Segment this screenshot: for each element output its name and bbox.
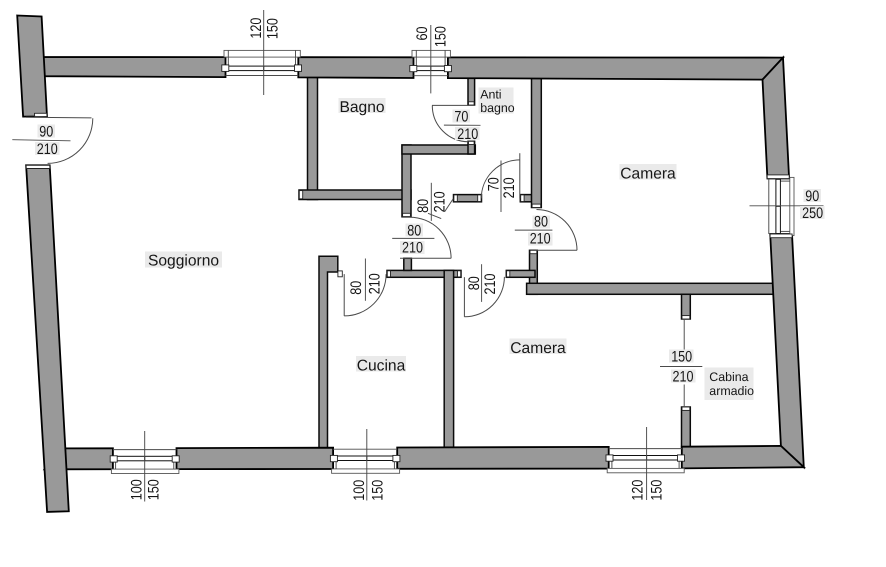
svg-text:80: 80 (415, 199, 432, 213)
svg-text:bagno: bagno (480, 101, 515, 115)
svg-text:210: 210 (432, 191, 449, 212)
svg-text:90: 90 (39, 123, 53, 140)
svg-text:60: 60 (414, 27, 431, 41)
svg-text:210: 210 (457, 126, 478, 143)
svg-text:Anti: Anti (480, 88, 501, 102)
svg-text:80: 80 (466, 276, 483, 290)
svg-text:210: 210 (37, 141, 58, 158)
svg-text:120: 120 (629, 480, 646, 501)
svg-text:90: 90 (805, 188, 819, 205)
svg-text:150: 150 (370, 480, 387, 501)
svg-text:210: 210 (530, 231, 551, 248)
svg-text:210: 210 (501, 177, 518, 198)
svg-text:Camera: Camera (510, 340, 566, 357)
svg-text:210: 210 (482, 274, 499, 295)
svg-text:Cucina: Cucina (357, 358, 406, 375)
svg-text:150: 150 (146, 479, 163, 500)
svg-text:80: 80 (348, 281, 365, 295)
svg-text:Soggiorno: Soggiorno (148, 253, 219, 270)
svg-text:Cabina: Cabina (709, 370, 748, 384)
svg-text:100: 100 (129, 479, 146, 500)
svg-text:150: 150 (432, 26, 449, 47)
svg-text:210: 210 (402, 240, 423, 257)
svg-text:70: 70 (454, 108, 468, 125)
svg-text:120: 120 (248, 18, 265, 39)
svg-text:210: 210 (673, 368, 694, 385)
svg-text:70: 70 (485, 177, 502, 191)
svg-text:Camera: Camera (620, 165, 676, 182)
svg-text:210: 210 (366, 273, 383, 294)
svg-text:150: 150 (671, 348, 692, 365)
svg-text:150: 150 (648, 480, 665, 501)
svg-text:armadio: armadio (709, 384, 754, 398)
svg-text:80: 80 (407, 222, 421, 239)
svg-text:250: 250 (802, 205, 823, 222)
svg-text:100: 100 (351, 480, 368, 501)
svg-text:80: 80 (534, 214, 548, 231)
svg-text:Bagno: Bagno (339, 99, 384, 116)
svg-text:150: 150 (265, 18, 282, 39)
